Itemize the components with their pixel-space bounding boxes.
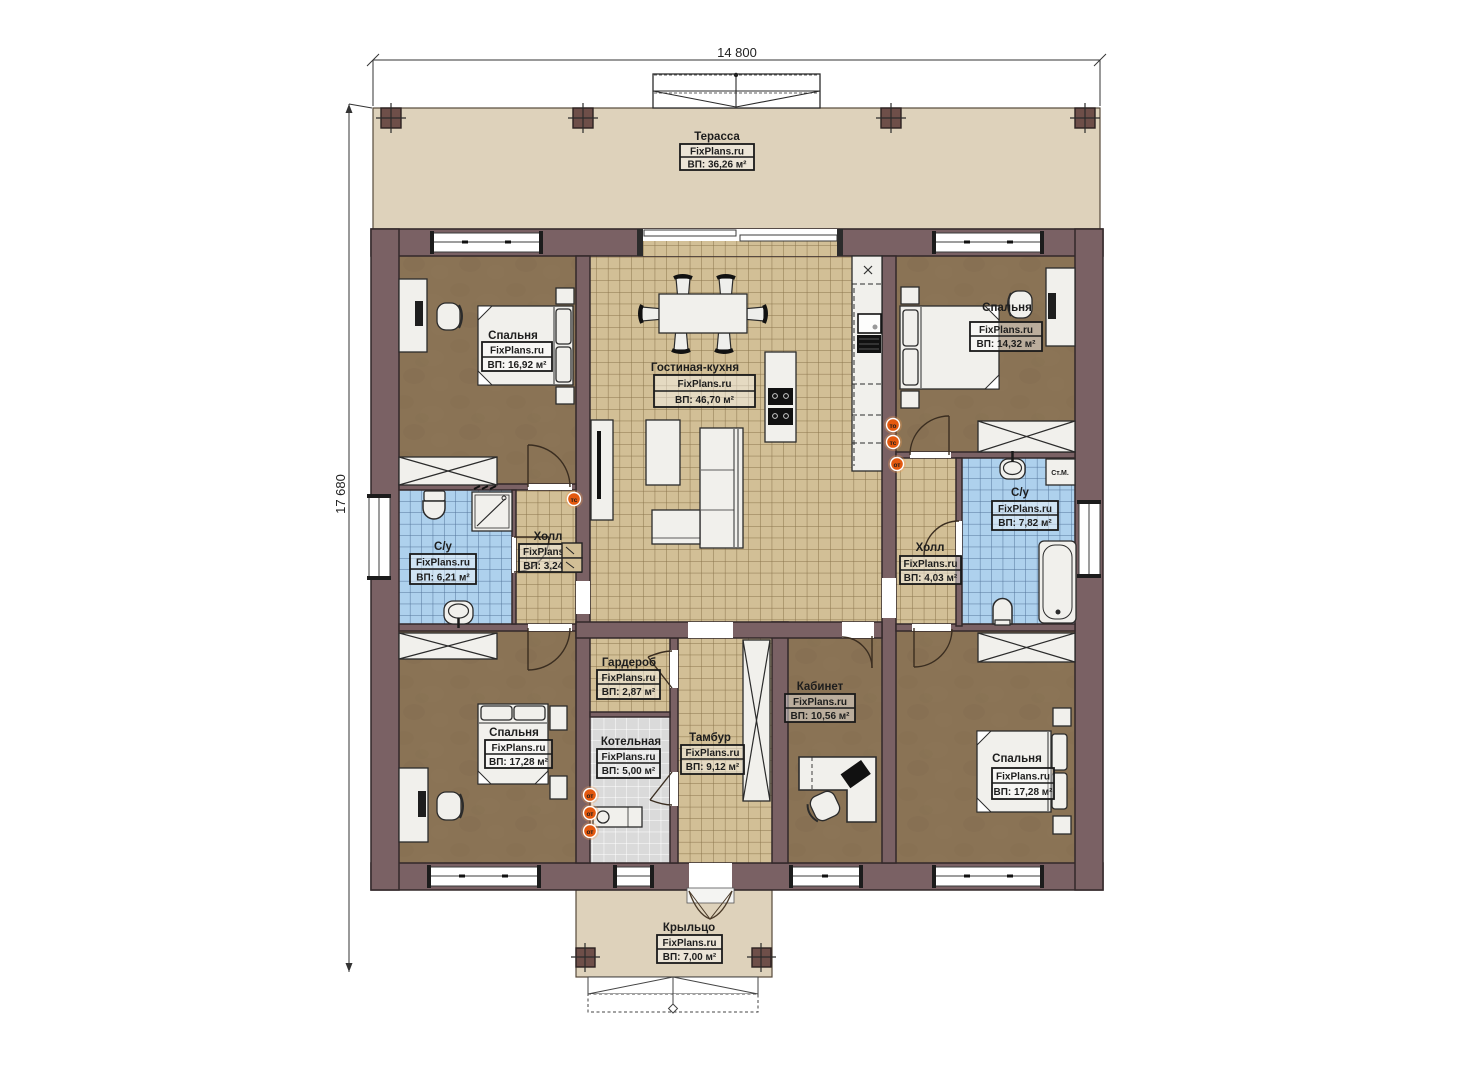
svg-text:ВП: 14,32 м²: ВП: 14,32 м² [976, 339, 1036, 350]
svg-text:Спальня: Спальня [488, 330, 538, 342]
svg-text:FixPlans.ru: FixPlans.ru [602, 752, 656, 763]
svg-text:Гостиная-кухня: Гостиная-кухня [651, 362, 739, 374]
svg-text:FixPlans.ru: FixPlans.ru [663, 938, 717, 949]
svg-text:ВП: 4,03 м²: ВП: 4,03 м² [904, 573, 958, 584]
svg-text:ВП: 6,21 м²: ВП: 6,21 м² [416, 573, 470, 584]
svg-text:ВП: 10,56 м²: ВП: 10,56 м² [790, 711, 850, 722]
svg-text:Спальня: Спальня [992, 753, 1042, 765]
svg-text:FixPlans.ru: FixPlans.ru [793, 697, 847, 708]
svg-text:FixPlans.ru: FixPlans.ru [690, 147, 744, 158]
svg-text:ВП: 17,28 м²: ВП: 17,28 м² [993, 787, 1053, 798]
svg-text:ВП: 17,28 м²: ВП: 17,28 м² [489, 757, 549, 768]
svg-text:ВП: 7,82 м²: ВП: 7,82 м² [998, 518, 1052, 529]
svg-text:Холл: Холл [916, 542, 945, 554]
svg-text:ВП: 9,12 м²: ВП: 9,12 м² [686, 762, 740, 773]
svg-text:FixPlans.ru: FixPlans.ru [686, 748, 740, 759]
svg-text:ВП: 7,00 м²: ВП: 7,00 м² [663, 952, 717, 963]
svg-text:Спальня: Спальня [982, 302, 1032, 314]
svg-text:ВП: 16,92 м²: ВП: 16,92 м² [487, 360, 547, 371]
svg-text:тс: тс [571, 497, 578, 504]
svg-text:от: от [587, 793, 594, 800]
svg-text:ВП: 36,26 м²: ВП: 36,26 м² [687, 160, 747, 171]
svg-text:Гардероб: Гардероб [602, 657, 656, 669]
svg-text:FixPlans.ru: FixPlans.ru [490, 346, 544, 357]
svg-text:FixPlans.ru: FixPlans.ru [979, 325, 1033, 336]
svg-text:FixPlans.ru: FixPlans.ru [602, 673, 656, 684]
svg-text:FixPlans.ru: FixPlans.ru [678, 379, 732, 390]
svg-text:FixPlans.ru: FixPlans.ru [996, 772, 1050, 783]
svg-text:Котельная: Котельная [601, 736, 661, 748]
svg-text:ВП: 5,00 м²: ВП: 5,00 м² [602, 766, 656, 777]
svg-text:17 680: 17 680 [333, 474, 348, 514]
svg-text:от: от [587, 811, 594, 818]
svg-text:FixPlans.ru: FixPlans.ru [416, 558, 470, 569]
svg-text:от: от [894, 462, 901, 469]
svg-text:ВП: 2,87 м²: ВП: 2,87 м² [602, 687, 656, 698]
svg-text:FixPlans.ru: FixPlans.ru [998, 504, 1052, 515]
svg-text:Крыльцо: Крыльцо [663, 922, 715, 934]
svg-text:от: от [587, 829, 594, 836]
svg-text:С/у: С/у [1011, 487, 1030, 499]
svg-text:Холл: Холл [534, 531, 563, 543]
svg-text:Кабинет: Кабинет [797, 681, 844, 693]
svg-text:FixPlans.ru: FixPlans.ru [904, 559, 958, 570]
svg-text:Ст.М.: Ст.М. [1051, 470, 1069, 477]
svg-text:ВП: 46,70 м²: ВП: 46,70 м² [675, 395, 735, 406]
svg-text:Тамбур: Тамбур [689, 732, 731, 744]
svg-text:Спальня: Спальня [489, 727, 539, 739]
svg-text:тс: тс [890, 440, 897, 447]
svg-text:С/у: С/у [434, 541, 453, 553]
svg-text:14 800: 14 800 [717, 45, 757, 60]
svg-text:Терасса: Терасса [694, 131, 740, 143]
svg-text:то: то [889, 423, 896, 430]
svg-text:FixPlans.ru: FixPlans.ru [492, 743, 546, 754]
